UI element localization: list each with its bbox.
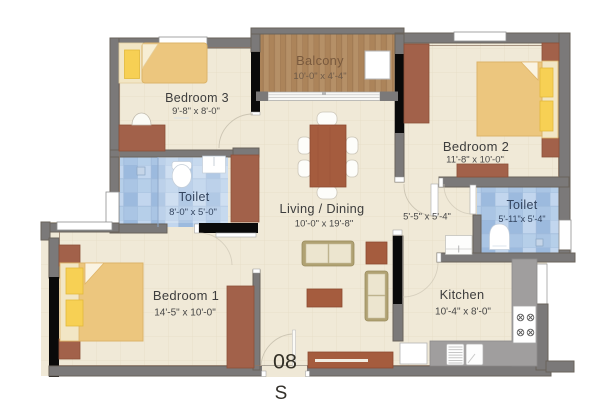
svg-text:Toilet: Toilet	[179, 190, 210, 204]
svg-text:5'-5" x 5'-4": 5'-5" x 5'-4"	[403, 212, 451, 223]
svg-text:11'-8" x 10'-0": 11'-8" x 10'-0"	[446, 155, 504, 166]
svg-text:Living / Dining: Living / Dining	[280, 201, 365, 216]
svg-text:10'-0" x 19'-8": 10'-0" x 19'-8"	[295, 219, 353, 230]
svg-text:Bedroom 3: Bedroom 3	[165, 91, 229, 105]
svg-text:10'-4" x 8'-0": 10'-4" x 8'-0"	[435, 307, 491, 318]
svg-text:Bedroom 2: Bedroom 2	[443, 139, 509, 154]
svg-text:Toilet: Toilet	[507, 198, 538, 212]
svg-text:Balcony: Balcony	[296, 53, 344, 68]
svg-text:9'-8" x 8'-0": 9'-8" x 8'-0"	[172, 106, 220, 117]
svg-text:10'-0" x 4'-4": 10'-0" x 4'-4"	[293, 71, 346, 82]
svg-text:S: S	[275, 383, 288, 400]
svg-text:Bedroom 1: Bedroom 1	[153, 288, 219, 303]
svg-text:08: 08	[273, 350, 297, 374]
svg-text:14'-5" x 10'-0": 14'-5" x 10'-0"	[154, 308, 216, 319]
svg-text:8'-0" x 5'-0": 8'-0" x 5'-0"	[169, 207, 217, 218]
svg-text:Kitchen: Kitchen	[440, 287, 485, 302]
svg-text:5'-11"x 5'-4": 5'-11"x 5'-4"	[498, 214, 545, 224]
